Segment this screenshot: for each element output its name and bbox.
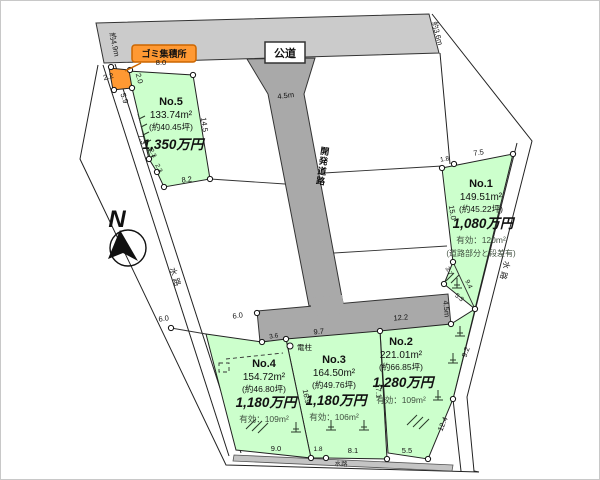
lot-no5-number: No.5 [159, 96, 183, 108]
lot-no1-number: No.1 [469, 178, 493, 190]
dim-no2-bottom: 5.5 [402, 446, 412, 455]
public-road-label: 公道 [274, 46, 296, 60]
lot-no4-note1: 有効：109m² [239, 414, 289, 424]
dev-road-width-bottom: 4.5m [441, 300, 451, 317]
lot-no3-note1: 有効：106m² [309, 412, 359, 422]
dim-no3-bottom2: 8.1 [348, 446, 358, 455]
lot-no4-tsubo: (約46.80坪) [242, 384, 286, 394]
lot-no3-number: No.3 [322, 354, 346, 366]
dim-no5-bottom: 8.2 [181, 174, 192, 184]
public-road-label-box: 公道 [265, 42, 305, 63]
dev-road-label: 開発道路 [314, 146, 330, 187]
subdivision-plan-drawing: 公道 約4.9m 約3.6m 開発道路 4.5m 4.5m ゴミ集積所 電柱 水… [1, 1, 600, 480]
dim-no5-top: 8.0 [156, 58, 166, 67]
lot-no1-tsubo: (約45.22坪) [459, 204, 503, 214]
lot-no1-note1: 有効：120m² [456, 235, 506, 245]
dim-front-no3-b: 9.7 [313, 327, 324, 337]
dim-no1-top2: 7.5 [473, 147, 485, 158]
dim-front-no3-a: 3.6 [269, 332, 279, 340]
road-junction-patch [310, 295, 345, 316]
lot-no4-number: No.4 [252, 358, 277, 370]
dim-no3-bottom1: 1.8 [313, 446, 322, 453]
lot-no3-price: 1,180万円 [306, 393, 369, 408]
dim-no4-bottom: 9.0 [271, 444, 281, 453]
lot-no4-area: 154.72m² [243, 372, 286, 383]
lot-no1-area: 149.51m² [460, 192, 503, 203]
north-arrow-icon [108, 230, 138, 261]
lot-no3-tsubo: (約49.76坪) [312, 380, 356, 390]
dim-front-no2: 12.2 [393, 312, 408, 322]
lot-no5-tsubo: (約40.45坪) [149, 122, 193, 132]
land-plot-map: 公道 約4.9m 約3.6m 開発道路 4.5m 4.5m ゴミ集積所 電柱 水… [0, 0, 600, 480]
lot-no2-area: 221.01m² [380, 350, 423, 361]
north-label: N [108, 206, 126, 233]
lot-no3-area: 164.50m² [313, 368, 356, 379]
dim-div-23: 17.1 [373, 383, 383, 398]
dim-front-no4-a: 6.0 [158, 313, 170, 323]
utility-pole-icon [287, 343, 293, 349]
lot-no2-number: No.2 [389, 336, 413, 348]
dim-front-no4-b: 6.0 [232, 310, 244, 320]
lot-no1-note2: (道路部分と段差有) [446, 248, 516, 258]
lot-no2-tsubo: (約66.85坪) [379, 362, 423, 372]
utility-pole-label: 電柱 [297, 342, 312, 352]
lot-no5-area: 133.74m² [150, 110, 193, 121]
waterway-right-label: 水路 [497, 260, 512, 284]
dim-no1-top1: 1.8 [440, 155, 450, 164]
lot-no4-price: 1,180万円 [236, 395, 299, 410]
dim-no5-left: 5.9 [118, 92, 130, 105]
lot-no1-price: 1,080万円 [453, 216, 516, 231]
